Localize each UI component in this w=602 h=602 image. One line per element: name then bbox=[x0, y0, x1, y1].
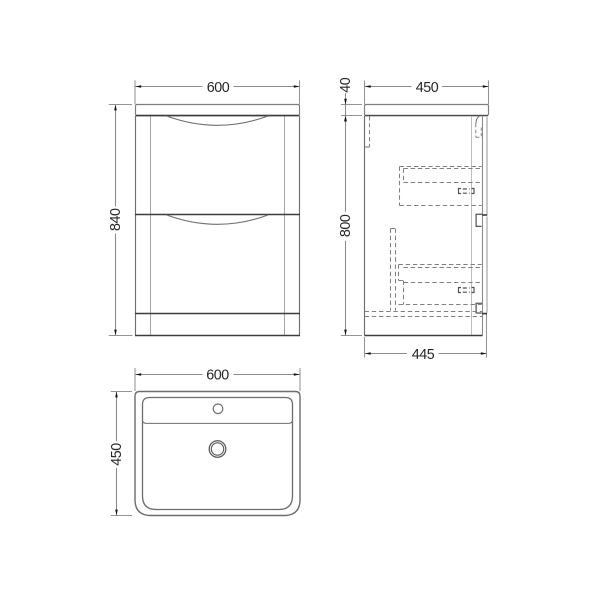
svg-text:600: 600 bbox=[206, 367, 229, 383]
svg-text:840: 840 bbox=[108, 208, 124, 231]
svg-text:800: 800 bbox=[338, 214, 354, 237]
svg-text:450: 450 bbox=[109, 443, 125, 466]
svg-text:600: 600 bbox=[207, 80, 230, 96]
svg-text:450: 450 bbox=[416, 80, 439, 96]
svg-text:40: 40 bbox=[338, 77, 354, 93]
svg-text:445: 445 bbox=[412, 347, 435, 363]
